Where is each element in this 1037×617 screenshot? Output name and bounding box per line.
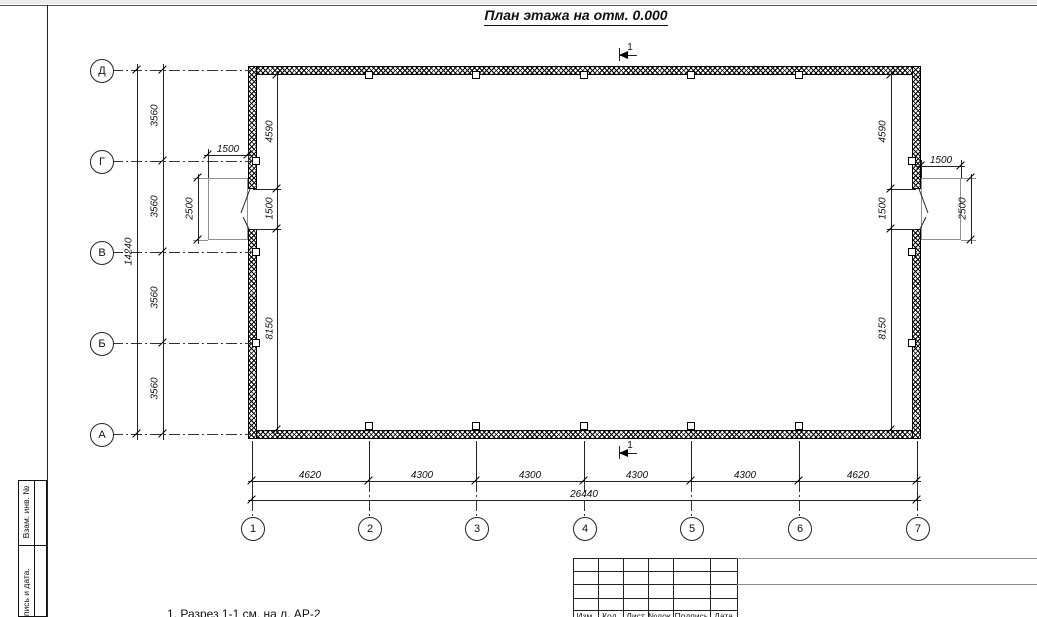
dim-text: 4300	[508, 470, 552, 481]
dim-text: 1500	[878, 189, 889, 229]
titleblock-line	[573, 558, 574, 617]
wall-bottom	[248, 430, 921, 439]
frame-left-line	[47, 5, 48, 617]
drawing-note: 1. Разрез 1-1 см. на л. АР-2	[167, 607, 321, 617]
axis-bubble-row: Д	[90, 59, 114, 83]
witness-line	[476, 441, 477, 481]
witness-line	[584, 441, 585, 481]
witness-line	[369, 441, 370, 481]
wall-left-upper	[248, 66, 257, 189]
axis-line-3	[476, 481, 477, 517]
titleblock-line	[673, 558, 674, 617]
dim-text: 3560	[150, 369, 161, 409]
titleblock-line	[598, 558, 599, 617]
dim-text: 2500	[958, 189, 969, 229]
witness-line	[799, 441, 800, 481]
axis-label: 6	[797, 523, 803, 535]
dim-text: 4620	[288, 470, 332, 481]
titleblock-header: Изм.	[573, 611, 598, 617]
axis-label: 2	[367, 523, 373, 535]
axis-line-2	[369, 481, 370, 517]
section-mark-bottom-label: 1	[624, 440, 636, 451]
frame-stamp-cell-label: Взам. инв. №	[21, 477, 31, 547]
pilaster	[580, 422, 588, 430]
wall-left-lower	[248, 229, 257, 439]
axis-label: Г	[99, 156, 105, 168]
axis-bubble-row: Г	[90, 150, 114, 174]
pilaster	[472, 422, 480, 430]
titleblock-line	[648, 558, 649, 617]
axis-bubble-col: 4	[573, 517, 597, 541]
frame-stamp-cell-label: Подпись и дата.	[21, 560, 31, 617]
dim-line-inner-right	[891, 71, 892, 434]
titleblock-extension-line	[737, 584, 1037, 585]
titleblock-header: №док.	[648, 611, 673, 617]
pilaster	[687, 71, 695, 79]
dim-line-col-spacing	[248, 481, 921, 482]
titleblock-line	[623, 558, 624, 617]
pilaster	[795, 422, 803, 430]
dim-line-row-spacing	[163, 64, 164, 440]
witness-line	[887, 229, 916, 230]
axis-label: 4	[582, 523, 588, 535]
pilaster	[365, 71, 373, 79]
titleblock-line	[737, 558, 738, 617]
axis-bubble-row: В	[90, 241, 114, 265]
titleblock-extension-line	[737, 558, 1037, 559]
dim-text: 1500	[919, 155, 963, 166]
dim-line-door-right-swing	[971, 174, 972, 244]
drawing-title-text: План этажа на отм. 0.000	[484, 7, 667, 26]
pilaster	[252, 248, 260, 256]
axis-label: В	[98, 247, 105, 259]
titleblock-line	[573, 558, 738, 559]
axis-label: А	[98, 429, 105, 441]
dim-line-row-total	[137, 64, 138, 440]
pilaster	[365, 422, 373, 430]
axis-bubble-col: 6	[788, 517, 812, 541]
axis-line-b	[112, 343, 252, 344]
titleblock-header: Подпись	[673, 611, 710, 617]
axis-line-6	[799, 481, 800, 517]
dim-text: 4620	[836, 470, 880, 481]
axis-bubble-col: 3	[465, 517, 489, 541]
titleblock-line	[573, 571, 738, 572]
titleblock-header: Лист	[623, 611, 648, 617]
axis-bubble-col: 2	[358, 517, 382, 541]
axis-label: 1	[250, 523, 256, 535]
dim-text: 2500	[185, 189, 196, 229]
pilaster	[252, 339, 260, 347]
axis-line-g	[112, 161, 252, 162]
dim-text: 4300	[723, 470, 767, 481]
axis-label: Б	[98, 338, 105, 350]
screenshot-top-strip	[0, 0, 1037, 4]
dim-text: 8150	[878, 309, 889, 349]
pilaster	[252, 157, 260, 165]
frame-stamp-divider	[34, 480, 35, 617]
axis-bubble-col: 5	[680, 517, 704, 541]
dim-text: 3560	[150, 187, 161, 227]
wall-right-upper	[912, 66, 921, 189]
dim-text: 4590	[265, 112, 276, 152]
dim-text: 4300	[615, 470, 659, 481]
dim-text: 1500	[206, 144, 250, 155]
axis-label: 7	[915, 523, 921, 535]
dim-line-col-total	[248, 500, 921, 501]
door-swing-left	[208, 178, 248, 240]
axis-label: Д	[98, 65, 105, 77]
axis-line-5	[691, 481, 692, 517]
pilaster	[795, 71, 803, 79]
titleblock-line	[573, 584, 738, 585]
dim-line-inner-left	[277, 71, 278, 434]
titleblock-header: Кол.	[598, 611, 623, 617]
dim-line-door-left-swing	[198, 174, 199, 244]
axis-label: 5	[689, 523, 695, 535]
dim-text: 8150	[265, 309, 276, 349]
pilaster	[908, 157, 916, 165]
drawing-sheet: План этажа на отм. 0.000 1 1 Д Г В Б А 3…	[0, 0, 1037, 617]
drawing-title: План этажа на отм. 0.000	[446, 7, 706, 26]
dim-text: 3560	[150, 96, 161, 136]
witness-line	[691, 441, 692, 481]
wall-right-lower	[912, 229, 921, 439]
axis-bubble-row: А	[90, 423, 114, 447]
pilaster	[908, 339, 916, 347]
door-swing-right	[921, 178, 961, 240]
axis-bubble-col: 7	[906, 517, 930, 541]
pilaster	[472, 71, 480, 79]
dim-text: 4590	[878, 112, 889, 152]
titleblock-line	[573, 598, 738, 599]
axis-bubble-row: Б	[90, 332, 114, 356]
frame-top-line	[0, 5, 1037, 6]
dim-text: 26440	[560, 489, 608, 500]
section-mark-top-label: 1	[624, 42, 636, 53]
pilaster	[687, 422, 695, 430]
witness-line	[887, 189, 916, 190]
axis-bubble-col: 1	[241, 517, 265, 541]
dim-text: 4300	[400, 470, 444, 481]
dim-text: 14240	[124, 230, 135, 274]
titleblock-header: Дата	[710, 611, 737, 617]
dim-text: 3560	[150, 278, 161, 318]
titleblock-line	[710, 558, 711, 617]
pilaster	[580, 71, 588, 79]
axis-label: 3	[474, 523, 480, 535]
pilaster	[908, 248, 916, 256]
witness-line	[253, 229, 281, 230]
dim-text: 1500	[265, 189, 276, 229]
